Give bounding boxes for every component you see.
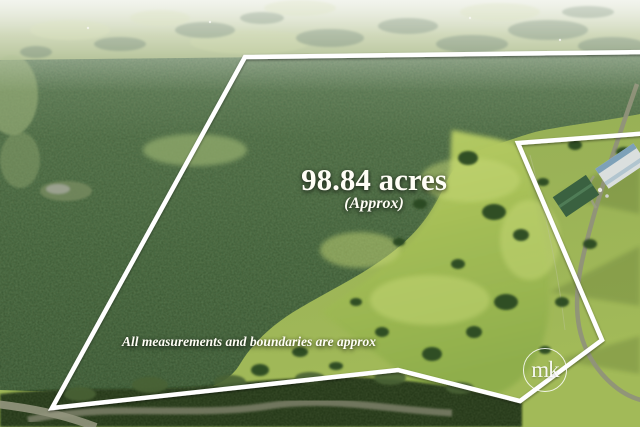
vehicle — [598, 188, 602, 192]
aerial-photo: 98.84 acres (Approx) All measurements an… — [0, 0, 640, 427]
vehicle — [605, 194, 609, 198]
disclaimer-text: All measurements and boundaries are appr… — [122, 334, 376, 350]
agency-logo-watermark: mk — [523, 348, 567, 392]
logo-monogram: mk — [531, 357, 558, 383]
haze — [0, 0, 640, 92]
area-approx-label: (Approx) — [344, 195, 404, 213]
area-label: 98.84 acres — [301, 162, 447, 198]
